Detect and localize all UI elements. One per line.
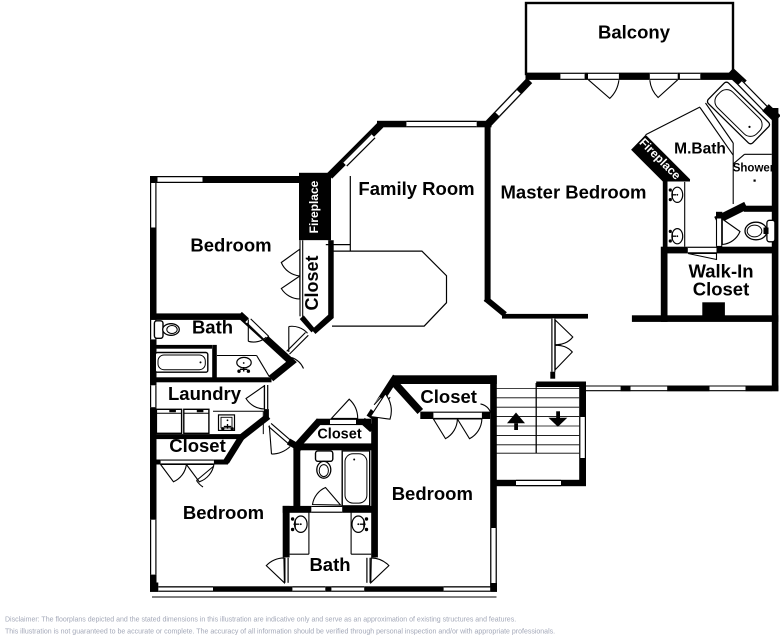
svg-text:Shower: Shower (733, 163, 775, 175)
svg-text:Family Room: Family Room (358, 178, 474, 199)
svg-text:Fireplace: Fireplace (307, 180, 321, 233)
svg-text:Laundry: Laundry (168, 383, 242, 404)
svg-text:Disclaimer: The floorplans dep: Disclaimer: The floorplans depicted and … (5, 617, 516, 624)
svg-text:Closet: Closet (169, 435, 226, 456)
svg-text:Closet: Closet (693, 279, 750, 300)
svg-text:Master Bedroom: Master Bedroom (501, 182, 647, 203)
svg-text:M.Bath: M.Bath (674, 141, 726, 158)
svg-text:Bath: Bath (309, 554, 350, 575)
svg-text:Bedroom: Bedroom (392, 483, 473, 504)
svg-text:Closet: Closet (302, 255, 322, 310)
svg-text:Bedroom: Bedroom (183, 502, 264, 523)
svg-text:Balcony: Balcony (598, 22, 671, 43)
svg-text:Bath: Bath (192, 317, 233, 338)
svg-text:Closet: Closet (420, 386, 477, 407)
svg-text:This illustration is not guara: This illustration is not guaranteed to b… (5, 629, 555, 636)
svg-text:Closet: Closet (317, 427, 361, 443)
svg-text:Bedroom: Bedroom (190, 235, 271, 256)
